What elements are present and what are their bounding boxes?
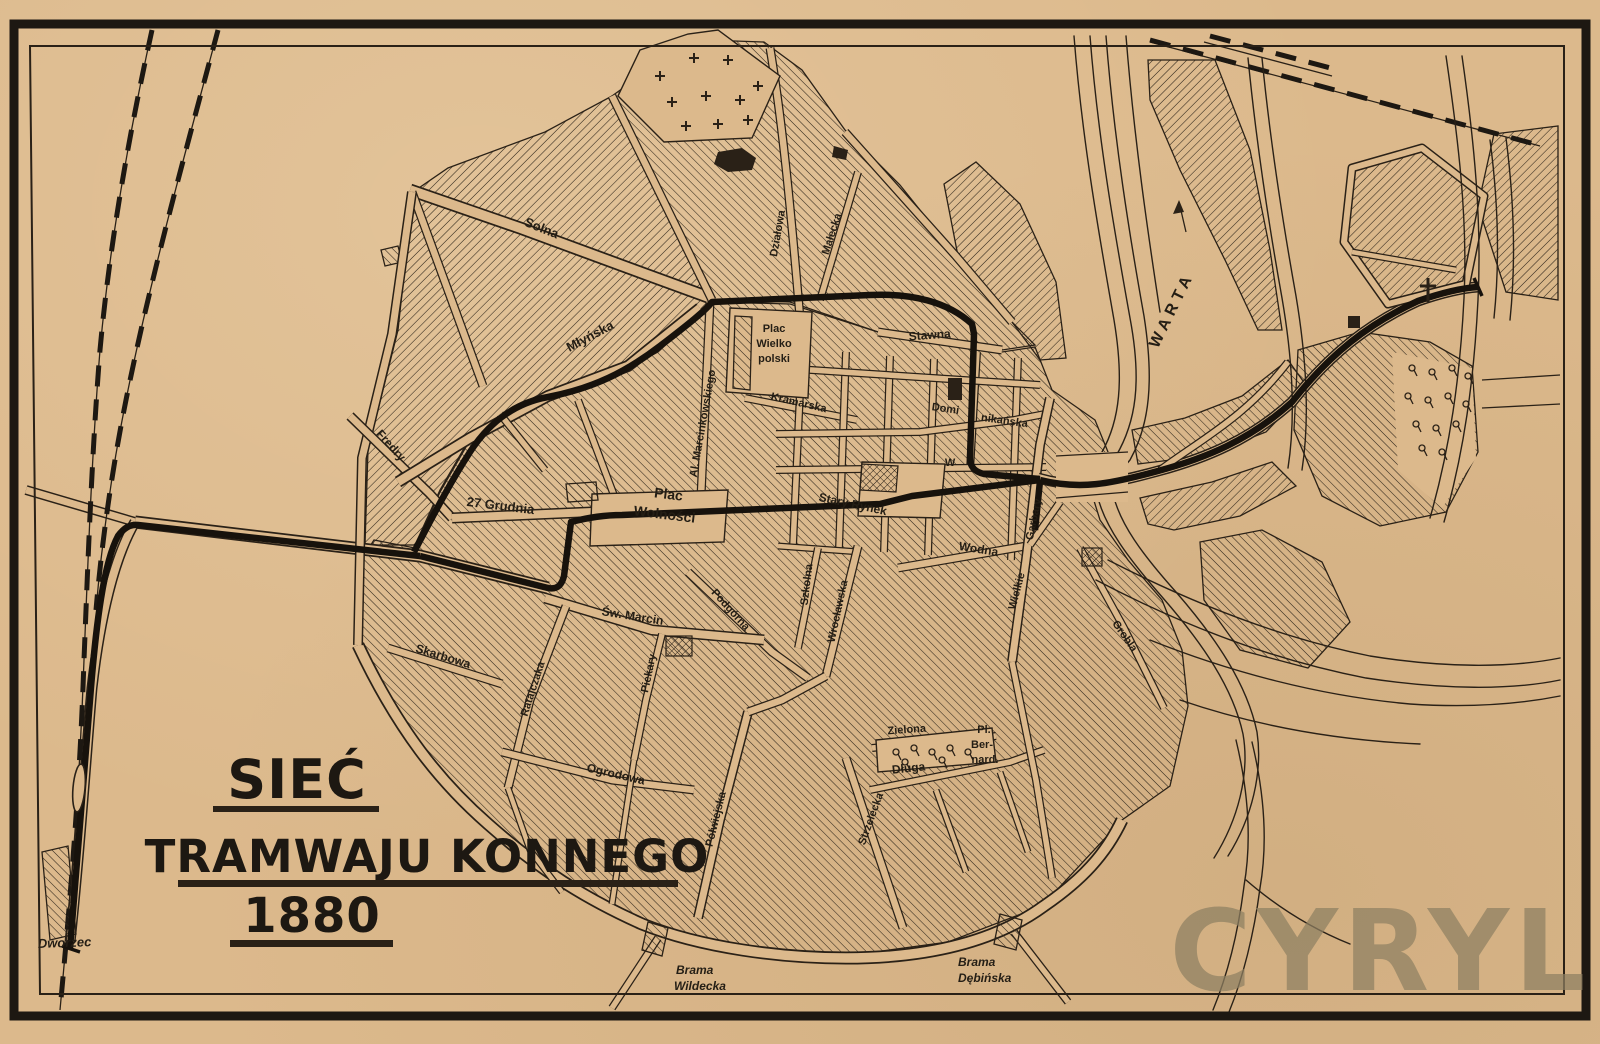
label-plac-wielkopolski-3: polski (758, 353, 790, 365)
cyryl-watermark: CYRYL (1170, 887, 1591, 1017)
title-underline-1 (213, 806, 379, 812)
label-wielka: W (945, 457, 956, 469)
label-plac-wielkopolski-2: Wielko (756, 338, 792, 350)
label-brama-debinska-1: Brama (958, 955, 996, 969)
label-plac-wielkopolski-1: Plac (763, 323, 786, 335)
label-dworzec: Dworzec (38, 934, 93, 951)
label-warta-river: WARTA (1146, 269, 1197, 351)
label-pl-bernard-1: Pl. (977, 724, 990, 736)
title-line-2: TRAMWAJU KONNEGO (145, 830, 710, 883)
label-stawna: Stawna (908, 327, 951, 344)
title-line-3: 1880 (243, 888, 381, 944)
label-brama-wildecka-2: Wildecka (674, 979, 726, 993)
historic-tram-map-page: Solna Młyńska Fredry 27 Grudnia Plac Wol… (0, 0, 1600, 1044)
map-svg: Solna Młyńska Fredry 27 Grudnia Plac Wol… (0, 0, 1600, 1044)
label-brama-wildecka-1: Brama (676, 963, 714, 977)
city-blocks (358, 40, 1558, 956)
bridge-chwaliszewo (1056, 452, 1128, 502)
title-line-1: SIEĆ (227, 748, 367, 811)
label-pl-bernard-2: Ber- (971, 739, 993, 751)
label-pl-bernard-3: nard. (972, 754, 999, 766)
title-underline-2 (178, 880, 678, 887)
town-hall-block (860, 464, 898, 492)
title-underline-3 (230, 940, 393, 947)
label-brama-debinska-2: Dębińska (958, 971, 1012, 985)
